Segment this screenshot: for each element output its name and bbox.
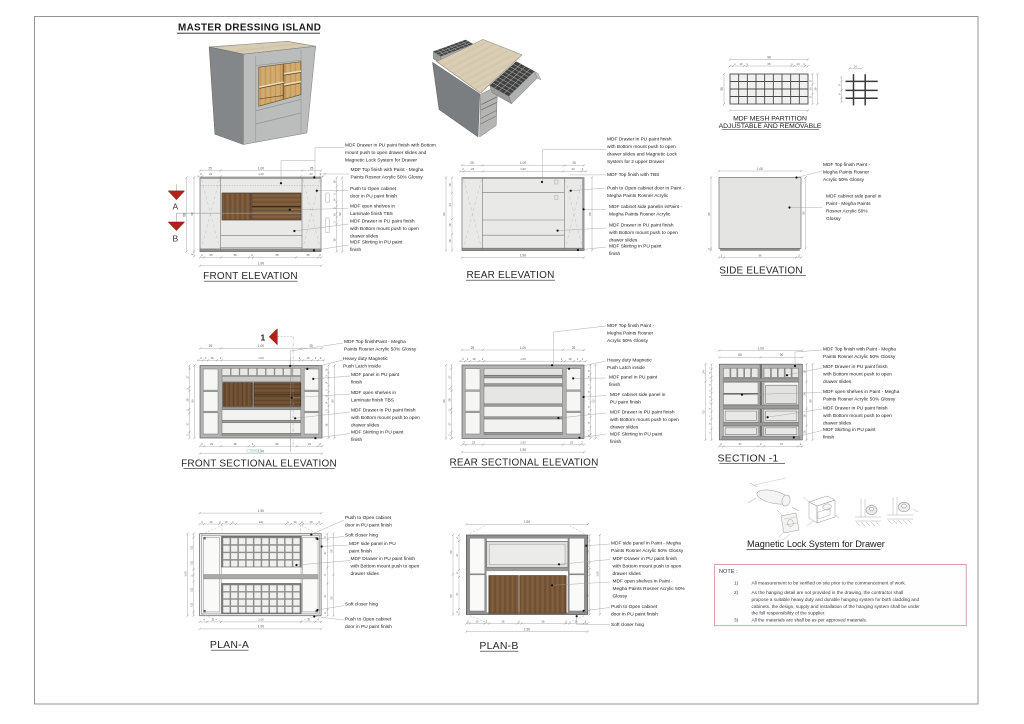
svg-text:REAR ELEVATION: REAR ELEVATION xyxy=(466,270,554,281)
svg-text:18: 18 xyxy=(448,223,452,227)
svg-text:23: 23 xyxy=(309,172,313,176)
svg-text:23: 23 xyxy=(308,442,312,446)
svg-text:19: 19 xyxy=(210,356,214,360)
svg-text:finish: finish xyxy=(351,380,363,386)
svg-text:25: 25 xyxy=(209,253,213,257)
svg-text:FRONT ELEVATION: FRONT ELEVATION xyxy=(203,271,298,282)
svg-text:door in PU paint finish: door in PU paint finish xyxy=(345,523,392,529)
svg-text:EQ: EQ xyxy=(190,561,193,565)
svg-text:25: 25 xyxy=(572,346,576,350)
svg-text:door in PU paint finish: door in PU paint finish xyxy=(611,611,658,617)
svg-text:88: 88 xyxy=(588,212,592,216)
svg-text:3): 3) xyxy=(734,617,739,622)
svg-text:MDF Skirting in PU paint: MDF Skirting in PU paint xyxy=(351,430,404,436)
svg-text:25: 25 xyxy=(470,161,474,165)
svg-text:1.90: 1.90 xyxy=(520,448,526,452)
svg-text:52: 52 xyxy=(591,399,595,403)
svg-text:Push to Open cabinet: Push to Open cabinet xyxy=(611,604,658,610)
svg-text:1.90: 1.90 xyxy=(258,262,264,266)
svg-text:finish: finish xyxy=(350,247,362,253)
svg-text:drawer slides and Magnetic Loc: drawer slides and Magnetic Lock xyxy=(607,152,677,158)
svg-text:finish: finish xyxy=(610,439,622,445)
svg-text:25: 25 xyxy=(471,346,475,350)
svg-text:23: 23 xyxy=(472,441,476,445)
svg-text:MDF Drawer in PU paint finish: MDF Drawer in PU paint finish xyxy=(609,222,674,228)
svg-text:EQ EQ: EQ EQ xyxy=(251,451,258,453)
svg-text:ADJUSTABLE AND REMOVABLE: ADJUSTABLE AND REMOVABLE xyxy=(719,123,822,130)
svg-text:1.00: 1.00 xyxy=(520,167,526,171)
svg-text:PLAN-A: PLAN-A xyxy=(210,639,249,651)
svg-text:1.00: 1.00 xyxy=(596,571,600,577)
svg-text:90: 90 xyxy=(442,399,446,403)
svg-text:Paints Rosner Acrylic 50% Glos: Paints Rosner Acrylic 50% Glossy xyxy=(823,396,896,402)
svg-text:MDF Skirting in PU paint: MDF Skirting in PU paint xyxy=(350,240,403,246)
svg-text:EQ: EQ xyxy=(190,546,193,550)
svg-text:1.00: 1.00 xyxy=(520,346,526,350)
svg-text:the full responsibility of the: the full responsibility of the supplier. xyxy=(752,611,826,616)
svg-text:drawer slides: drawer slides xyxy=(351,423,380,429)
svg-text:Megha Paints Rosner Acrylic: Megha Paints Rosner Acrylic xyxy=(609,212,671,218)
svg-text:EQ: EQ xyxy=(259,520,263,524)
svg-text:mount push to open drawer slid: mount push to open drawer slides and xyxy=(345,150,427,156)
svg-text:38: 38 xyxy=(233,442,237,446)
svg-text:96: 96 xyxy=(758,253,762,257)
svg-text:Megha Paints Rosner Acrylic: Megha Paints Rosner Acrylic xyxy=(607,193,669,199)
svg-text:58: 58 xyxy=(275,253,279,257)
svg-text:1.00: 1.00 xyxy=(520,441,526,445)
svg-text:50: 50 xyxy=(449,594,453,598)
svg-text:60: 60 xyxy=(275,442,279,446)
svg-text:Glossy: Glossy xyxy=(613,593,628,599)
svg-text:FRONT SECTIONAL ELEVATION: FRONT SECTIONAL ELEVATION xyxy=(181,459,337,470)
svg-text:door in PU paint finish: door in PU paint finish xyxy=(345,624,392,630)
svg-text:MDF cabinet side panel in: MDF cabinet side panel in xyxy=(826,194,882,200)
svg-text:MDF open shelves in Paint - Me: MDF open shelves in Paint - Megha xyxy=(823,389,900,395)
svg-text:with Bottom mount push to open: with Bottom mount push to open xyxy=(609,230,678,236)
svg-text:Rosner Acrylic 50%: Rosner Acrylic 50% xyxy=(826,209,868,215)
svg-text:23: 23 xyxy=(571,167,575,171)
svg-text:MDF Drawer in PU paint finish: MDF Drawer in PU paint finish xyxy=(610,410,675,416)
svg-text:Glossy: Glossy xyxy=(826,216,841,222)
svg-text:90: 90 xyxy=(190,212,194,216)
svg-text:As the hanging detail are not: As the hanging detail are not provided i… xyxy=(752,590,904,595)
svg-text:1): 1) xyxy=(734,581,739,586)
svg-text:23: 23 xyxy=(570,441,574,445)
svg-text:MDF Top finish with TBS: MDF Top finish with TBS xyxy=(607,172,659,178)
svg-text:1: 1 xyxy=(261,333,266,343)
svg-text:90: 90 xyxy=(442,212,446,216)
svg-text:MDF Top finish with Paint - Me: MDF Top finish with Paint - Megha xyxy=(823,347,896,353)
svg-text:MDF Top finish Paint -: MDF Top finish Paint - xyxy=(607,323,654,329)
svg-text:Magnetic Lock System for Drawe: Magnetic Lock System for Drawer xyxy=(747,539,885,549)
svg-text:with Bottom mount push to open: with Bottom mount push to open xyxy=(350,226,419,232)
svg-text:18: 18 xyxy=(802,414,806,418)
svg-text:All measurement to be verified: All measurement to be verified on site p… xyxy=(752,581,907,586)
svg-text:Acrylic 50% Glossy: Acrylic 50% Glossy xyxy=(823,177,865,183)
svg-text:1.00: 1.00 xyxy=(520,357,526,361)
svg-text:21: 21 xyxy=(307,618,311,622)
svg-text:1.00: 1.00 xyxy=(758,346,764,350)
svg-text:MDF open shelves in Paint -: MDF open shelves in Paint - xyxy=(613,578,674,584)
svg-text:MDF Top finishPaint - Megha: MDF Top finishPaint - Megha xyxy=(344,339,406,345)
svg-text:paint finish: paint finish xyxy=(349,549,372,555)
svg-text:Heavy duty Magnetic: Heavy duty Magnetic xyxy=(343,356,388,362)
svg-text:finish: finish xyxy=(609,251,621,257)
svg-text:Paints Rosner Acrylic 50% Glos: Paints Rosner Acrylic 50% Glossy xyxy=(351,174,424,180)
svg-text:MDF panel in PU paint: MDF panel in PU paint xyxy=(351,372,400,378)
svg-text:Push Latch inside: Push Latch inside xyxy=(607,365,645,371)
svg-text:96: 96 xyxy=(767,55,771,59)
svg-text:MDF panel in PU paint: MDF panel in PU paint xyxy=(609,375,658,381)
svg-text:PLAN-B: PLAN-B xyxy=(479,640,518,652)
svg-text:Acrylic 50% Glossy: Acrylic 50% Glossy xyxy=(607,338,649,344)
svg-text:System for 2 upper Drawer: System for 2 upper Drawer xyxy=(607,159,665,165)
svg-text:47: 47 xyxy=(780,442,784,446)
svg-text:MDF Drawer in PU paint finish: MDF Drawer in PU paint finish xyxy=(351,408,416,414)
svg-text:24: 24 xyxy=(701,370,705,374)
svg-text:88: 88 xyxy=(707,212,711,216)
svg-text:EQ: EQ xyxy=(190,588,193,592)
svg-text:MDF open shelves in: MDF open shelves in xyxy=(351,390,396,396)
svg-text:MDF Drawer in PU paint finish: MDF Drawer in PU paint finish xyxy=(350,218,415,224)
svg-text:MDF cabinet side panelin inPai: MDF cabinet side panelin inPaint - xyxy=(609,204,682,210)
svg-text:Push to Open cabinet: Push to Open cabinet xyxy=(345,617,392,623)
svg-text:All the materials are shall be: All the materials are shall be as per ap… xyxy=(752,617,868,622)
svg-text:Push to Open cabinet door in P: Push to Open cabinet door in Paint - xyxy=(607,185,685,191)
svg-text:Soft closer hing: Soft closer hing xyxy=(611,622,644,628)
svg-text:50: 50 xyxy=(449,550,453,554)
svg-text:90: 90 xyxy=(338,212,342,216)
svg-text:19: 19 xyxy=(568,357,572,361)
svg-text:propose a suitable heavy duty: propose a suitable heavy duty and durabl… xyxy=(752,597,920,602)
svg-text:90: 90 xyxy=(808,399,812,403)
svg-text:23: 23 xyxy=(209,172,213,176)
svg-text:1.00: 1.00 xyxy=(757,167,763,171)
svg-text:1.00: 1.00 xyxy=(258,618,264,622)
svg-text:Megha Paints Rosner: Megha Paints Rosner xyxy=(607,331,654,337)
svg-text:Push to Open cabinet: Push to Open cabinet xyxy=(350,186,397,192)
svg-text:90: 90 xyxy=(190,399,194,403)
svg-text:1.00: 1.00 xyxy=(258,356,264,360)
svg-text:with Bottom mount push to open: with Bottom mount push to open xyxy=(823,413,892,419)
svg-text:drawer slides: drawer slides xyxy=(350,233,379,239)
svg-text:23: 23 xyxy=(471,167,475,171)
svg-text:SIDE ELEVATION: SIDE ELEVATION xyxy=(719,266,803,277)
svg-text:34: 34 xyxy=(448,203,452,207)
svg-text:30: 30 xyxy=(720,87,724,91)
svg-text:MDF Drawer in PU paint finish: MDF Drawer in PU paint finish xyxy=(823,364,888,370)
svg-text:18: 18 xyxy=(448,239,452,243)
svg-text:MDF Drawer in PU paint finish: MDF Drawer in PU paint finish xyxy=(607,137,672,143)
svg-text:18: 18 xyxy=(448,183,452,187)
svg-text:1.90: 1.90 xyxy=(524,628,530,632)
svg-text:23: 23 xyxy=(210,442,214,446)
svg-text:90: 90 xyxy=(330,399,334,403)
svg-text:52: 52 xyxy=(701,410,705,414)
svg-text:with Bottom mount push to open: with Bottom mount push to open xyxy=(351,415,420,421)
svg-text:drawer slides: drawer slides xyxy=(610,425,639,431)
svg-text:SECTION -1: SECTION -1 xyxy=(718,453,779,465)
svg-text:1.00: 1.00 xyxy=(520,161,526,165)
svg-text:Paints Rosner Acrylic 50% Glos: Paints Rosner Acrylic 50% Glossy xyxy=(823,354,896,360)
svg-text:25: 25 xyxy=(572,161,576,165)
svg-text:Megha Paints Rosner: Megha Paints Rosner xyxy=(823,170,870,176)
svg-text:60: 60 xyxy=(738,353,742,357)
svg-text:B: B xyxy=(173,234,179,244)
svg-text:MASTER DRESSING ISLAND: MASTER DRESSING ISLAND xyxy=(178,23,321,34)
svg-text:door in PU paint finish: door in PU paint finish xyxy=(350,194,397,200)
svg-text:MDF Skirting in PU paint: MDF Skirting in PU paint xyxy=(610,431,663,437)
svg-text:Paint - Megha Paints: Paint - Megha Paints xyxy=(826,201,871,207)
svg-text:drawer slides: drawer slides xyxy=(823,379,852,385)
svg-text:1.90: 1.90 xyxy=(520,254,526,258)
svg-text:Soft closer hing: Soft closer hing xyxy=(345,533,378,539)
svg-text:Magnetic Lock System for Drawe: Magnetic Lock System for Drawer xyxy=(345,158,417,164)
svg-text:90: 90 xyxy=(780,353,784,357)
svg-text:NOTE :: NOTE : xyxy=(719,569,738,575)
svg-text:Push to Open cabinet: Push to Open cabinet xyxy=(345,515,392,521)
svg-text:50: 50 xyxy=(329,596,333,600)
svg-text:A: A xyxy=(173,202,179,212)
svg-text:34: 34 xyxy=(802,392,806,396)
svg-text:90: 90 xyxy=(801,211,805,215)
svg-text:19: 19 xyxy=(472,357,476,361)
svg-text:1.00: 1.00 xyxy=(183,571,187,577)
svg-text:MDF side panel in PU: MDF side panel in PU xyxy=(349,541,396,547)
svg-text:finish: finish xyxy=(351,437,363,443)
svg-text:drawer slides: drawer slides xyxy=(823,421,852,427)
svg-text:with Bottom mount push to open: with Bottom mount push to open xyxy=(351,564,420,570)
svg-text:MDF cabinet side panel in: MDF cabinet side panel in xyxy=(610,392,666,398)
svg-text:88: 88 xyxy=(182,213,186,217)
svg-text:MDF Drawer in PU paint finish: MDF Drawer in PU paint finish xyxy=(351,556,416,562)
svg-text:1.90: 1.90 xyxy=(524,520,530,524)
svg-text:finish: finish xyxy=(609,382,621,388)
svg-text:drawer slides: drawer slides xyxy=(609,237,638,243)
svg-text:25: 25 xyxy=(306,253,310,257)
svg-text:MDF side panel in Paint - Megh: MDF side panel in Paint - Megha xyxy=(611,541,681,547)
svg-text:25: 25 xyxy=(209,344,213,348)
svg-text:1.00: 1.00 xyxy=(258,344,264,348)
svg-text:1.90: 1.90 xyxy=(258,509,264,513)
svg-text:Paints Rosner Acrylic 50% Glos: Paints Rosner Acrylic 50% Glossy xyxy=(611,548,684,554)
svg-text:drawer slides: drawer slides xyxy=(351,571,380,577)
svg-text:EQ: EQ xyxy=(190,603,193,607)
svg-text:with Bottom mount push to open: with Bottom mount push to open xyxy=(610,417,679,423)
svg-text:1.00: 1.00 xyxy=(258,172,264,176)
svg-text:25: 25 xyxy=(208,166,212,170)
svg-text:36: 36 xyxy=(233,253,237,257)
svg-text:REAR SECTIONAL ELEVATION: REAR SECTIONAL ELEVATION xyxy=(449,458,598,469)
svg-text:19: 19 xyxy=(306,356,310,360)
svg-text:with Bottom mount push to open: with Bottom mount push to open xyxy=(607,144,676,150)
svg-text:MDF Top finish Paint -: MDF Top finish Paint - xyxy=(823,162,870,168)
svg-text:Laminate finish TBS: Laminate finish TBS xyxy=(350,211,393,217)
svg-text:with Bottom mount push to open: with Bottom mount push to open xyxy=(613,563,682,569)
svg-text:MDF Drawer in PU paint finish: MDF Drawer in PU paint finish xyxy=(823,406,888,412)
svg-text:PU paint finish: PU paint finish xyxy=(610,400,641,406)
svg-text:finish: finish xyxy=(823,434,835,440)
svg-text:MDF Drawer in PU paint finish: MDF Drawer in PU paint finish with Botto… xyxy=(345,143,436,149)
svg-text:MDF open shelves in: MDF open shelves in xyxy=(350,203,395,209)
svg-text:cabinets. the design, supply a: cabinets. the design, supply and install… xyxy=(752,604,921,609)
svg-text:50: 50 xyxy=(329,549,333,553)
svg-text:MDF Top finish with Paint - Me: MDF Top finish with Paint - Megha xyxy=(351,167,424,173)
svg-text:MDF Skirting in PU paint: MDF Skirting in PU paint xyxy=(823,427,876,433)
svg-text:47: 47 xyxy=(738,442,742,446)
svg-text:21: 21 xyxy=(211,618,215,622)
svg-text:drawer slides: drawer slides xyxy=(613,571,642,577)
svg-text:Soft closer hing: Soft closer hing xyxy=(345,602,378,608)
svg-text:Heavy duty Magnetic: Heavy duty Magnetic xyxy=(607,358,652,364)
svg-text:with Bottom mount push to open: with Bottom mount push to open xyxy=(823,372,892,378)
svg-text:MDF Skirting in PU paint: MDF Skirting in PU paint xyxy=(609,244,662,250)
svg-text:MDF MESH PARTITION: MDF MESH PARTITION xyxy=(733,116,807,123)
svg-text:Push Latch inside: Push Latch inside xyxy=(343,364,381,370)
svg-text:1.00: 1.00 xyxy=(258,166,264,170)
svg-text:2): 2) xyxy=(734,590,739,595)
svg-text:MDF Drawer in PU paint finish: MDF Drawer in PU paint finish xyxy=(613,556,678,562)
svg-text:25: 25 xyxy=(310,166,314,170)
svg-text:20: 20 xyxy=(802,430,806,434)
svg-text:Laminate finish TBS: Laminate finish TBS xyxy=(351,398,394,404)
svg-text:Paints Rosner Acrylic 50% Glos: Paints Rosner Acrylic 50% Glossy xyxy=(344,347,417,353)
svg-text:1.90: 1.90 xyxy=(258,625,264,629)
svg-text:Megha Paints Rosner Acrylic 50: Megha Paints Rosner Acrylic 50% xyxy=(613,586,686,592)
